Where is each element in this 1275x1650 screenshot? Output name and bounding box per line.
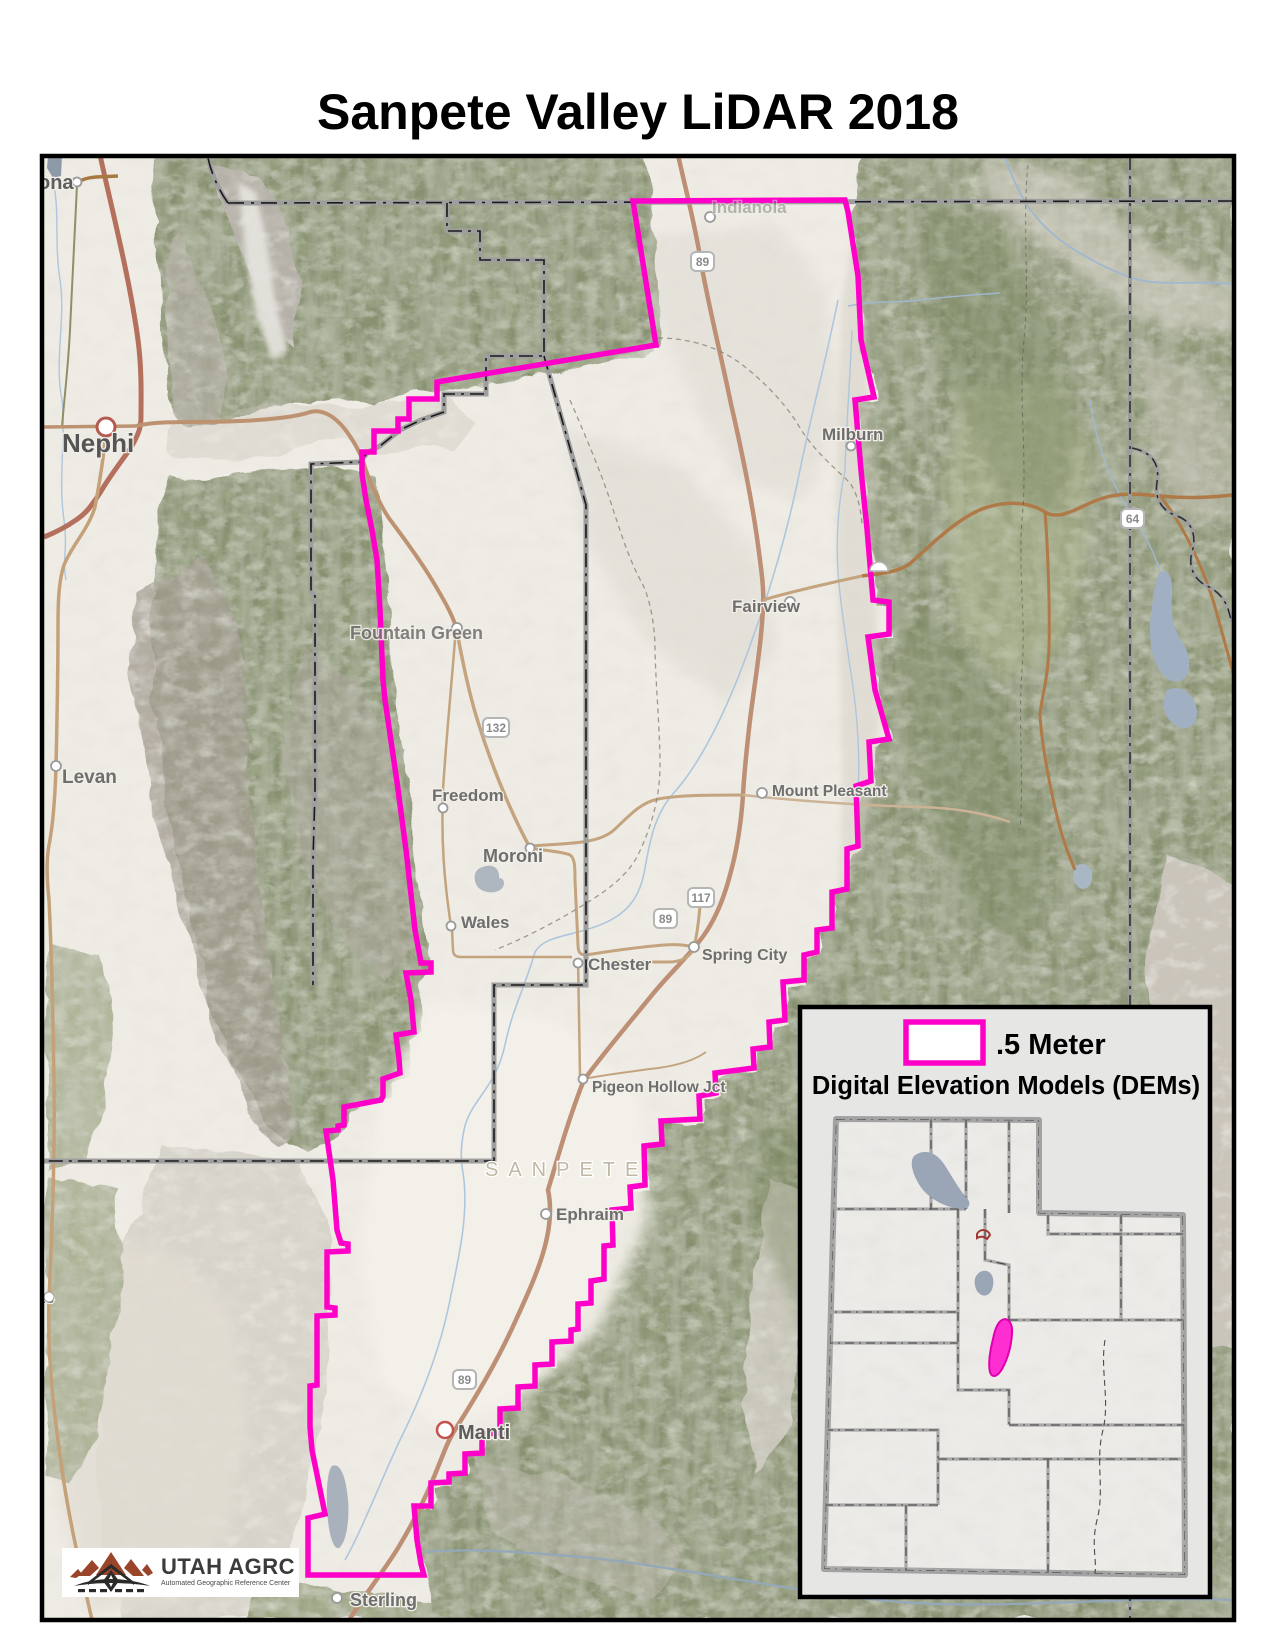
svg-text:89: 89 [696, 255, 710, 269]
svg-text:Pigeon Hollow Jct: Pigeon Hollow Jct [592, 1079, 725, 1096]
svg-text:Automated Geographic Reference: Automated Geographic Reference Center [161, 1580, 291, 1587]
svg-text:Fairview: Fairview [732, 597, 801, 616]
svg-text:Spring City: Spring City [702, 947, 787, 964]
svg-text:117: 117 [691, 891, 711, 905]
svg-text:Ephraim: Ephraim [556, 1205, 624, 1224]
svg-text:Mount Pleasant: Mount Pleasant [772, 783, 887, 800]
svg-text:64: 64 [1126, 512, 1140, 526]
svg-text:89: 89 [659, 912, 673, 926]
svg-text:Nephi: Nephi [62, 428, 134, 458]
svg-text:Wales: Wales [461, 913, 510, 932]
svg-text:Levan: Levan [62, 767, 117, 788]
svg-text:Chester: Chester [588, 955, 652, 974]
svg-text:Moroni: Moroni [483, 846, 543, 866]
svg-text:Fountain Green: Fountain Green [350, 623, 483, 643]
svg-text:Manti: Manti [458, 1422, 510, 1444]
svg-text:Freedom: Freedom [432, 786, 504, 805]
svg-text:89: 89 [458, 1373, 472, 1387]
svg-text:.5 Meter: .5 Meter [996, 1029, 1106, 1061]
svg-text:132: 132 [486, 721, 506, 735]
svg-text:Digital Elevation Models (DEMs: Digital Elevation Models (DEMs) [812, 1072, 1200, 1100]
svg-text:SANPETE: SANPETE [485, 1159, 648, 1181]
svg-text:Sterling: Sterling [350, 1590, 417, 1610]
svg-text:Sanpete Valley LiDAR 2018: Sanpete Valley LiDAR 2018 [317, 84, 959, 140]
svg-text:UTAH AGRC: UTAH AGRC [161, 1554, 295, 1579]
svg-text:Indianola: Indianola [712, 198, 787, 217]
svg-text:Milburn: Milburn [822, 425, 883, 444]
